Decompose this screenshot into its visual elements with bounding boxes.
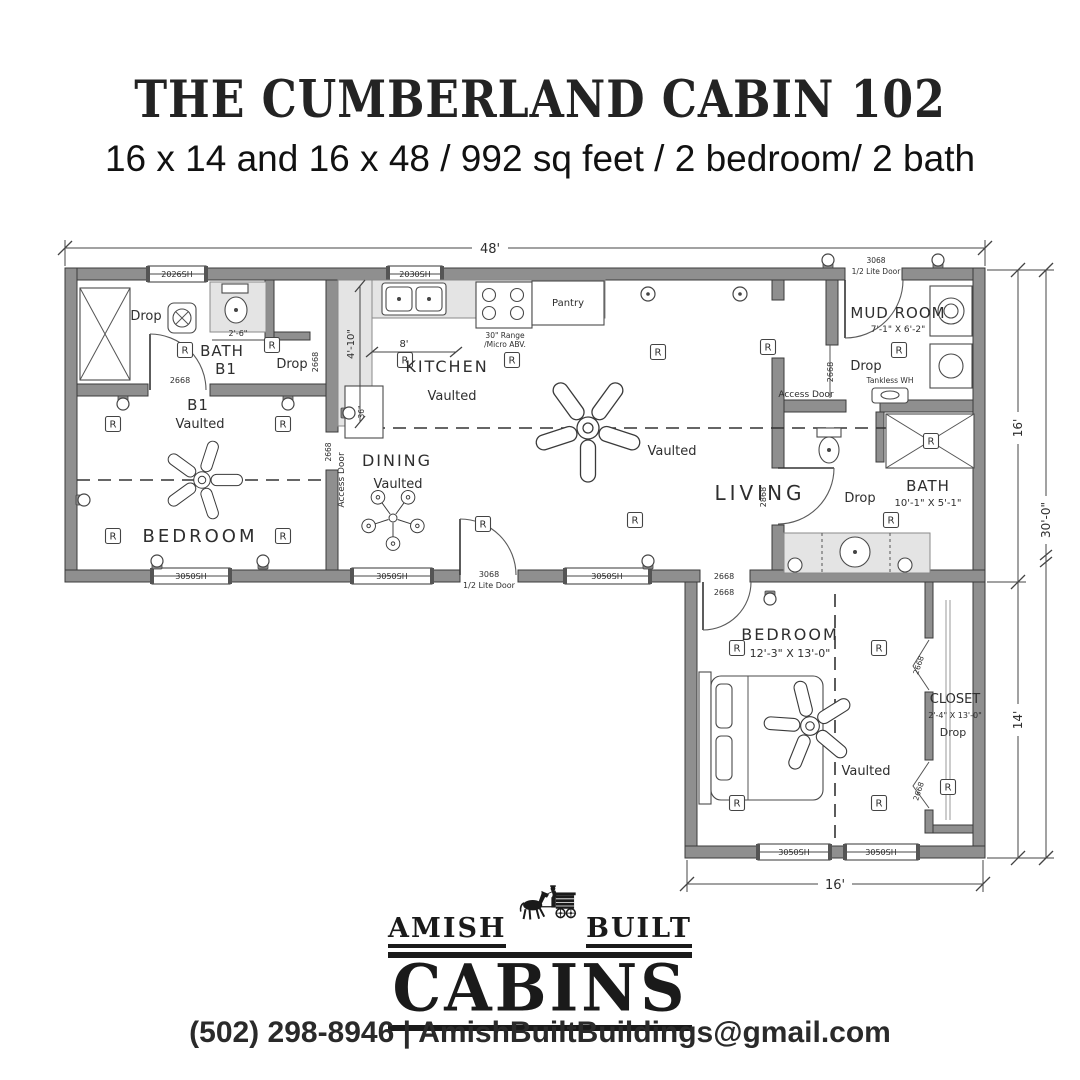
living-vaulted: Vaulted (647, 444, 696, 459)
window-3050sh-bed1: 3050SH (150, 568, 232, 584)
bed1-vaulted: Vaulted (175, 417, 224, 432)
svg-text:R: R (655, 348, 662, 359)
svg-text:R: R (110, 532, 117, 543)
svg-text:R: R (734, 644, 741, 655)
closet1-drop: Drop (276, 357, 307, 372)
kitchen-sink (382, 283, 446, 315)
window-2026sh: 2026SH (146, 266, 208, 282)
svg-text:2668: 2668 (170, 376, 190, 385)
svg-text:R: R (928, 437, 935, 448)
bed2-size: 12'-3" X 13'-0" (750, 647, 831, 660)
svg-text:R: R (480, 520, 487, 531)
window-3050sh-dining: 3050SH (350, 568, 434, 584)
kitchen-vaulted: Vaulted (427, 389, 476, 404)
svg-text:R: R (269, 341, 276, 352)
svg-text:R: R (110, 420, 117, 431)
svg-text:3068: 3068 (479, 570, 499, 579)
bed1-code: B1 (187, 396, 209, 414)
bath2-size: 10'-1" X 5'-1" (895, 498, 962, 509)
dining-vaulted: Vaulted (373, 477, 422, 492)
svg-text:R: R (945, 783, 952, 794)
svg-text:2668: 2668 (826, 362, 835, 382)
svg-text:R: R (876, 644, 883, 655)
bath1-code: B1 (215, 360, 237, 378)
shower-bath1 (80, 288, 130, 380)
mudroom-drop: Drop (850, 359, 881, 374)
svg-text:1/2 Lite Door: 1/2 Lite Door (852, 267, 902, 276)
closet2-size: 2'-4" X 13'-0" (928, 711, 982, 720)
dim-bath1-nook: 2'-6" (229, 329, 248, 338)
svg-text:R: R (280, 532, 287, 543)
bath2-drop: Drop (844, 491, 875, 506)
svg-text:3050SH: 3050SH (376, 572, 407, 581)
dining-chandelier (360, 488, 426, 551)
closet2-name: CLOSET (930, 692, 981, 707)
svg-text:3050SH: 3050SH (778, 848, 809, 857)
window-3050sh-bed2a: 3050SH (756, 844, 832, 860)
fan-bed1 (166, 440, 243, 521)
exhaust-fan-icon (168, 303, 196, 333)
svg-text:3050SH: 3050SH (591, 572, 622, 581)
range (476, 282, 532, 328)
bed2-vaulted: Vaulted (841, 764, 890, 779)
svg-text:2668: 2668 (911, 781, 926, 802)
svg-text:2668: 2668 (714, 572, 734, 581)
svg-text:2026SH: 2026SH (161, 270, 192, 279)
logo-word-cabins: CABINS (385, 955, 695, 1023)
toilet-bath2 (817, 428, 841, 463)
access-door-label: Access Door (337, 452, 347, 508)
svg-text:1/2 Lite Door: 1/2 Lite Door (463, 581, 516, 590)
kitchen-name: KITCHEN (405, 357, 488, 376)
svg-text:2668: 2668 (714, 588, 734, 597)
window-3050sh-living: 3050SH (563, 568, 652, 584)
mudroom-name: MUD ROOM (850, 304, 945, 322)
bed1-name: BEDROOM (143, 526, 258, 547)
bath1-name: BATH (200, 342, 244, 360)
window-3050sh-bed2b: 3050SH (843, 844, 920, 860)
living-name: LIVING (714, 481, 805, 505)
dim-16ft-lower: 16' (825, 878, 845, 893)
dim-30ft: 30'-0" (1039, 502, 1053, 538)
amish-built-cabins-logo: AMISH (388, 856, 692, 1031)
tankless-label: Tankless WH (866, 376, 914, 385)
dining-name: DINING (362, 451, 432, 470)
bath1-drop: Drop (130, 309, 161, 324)
svg-text:R: R (182, 346, 189, 357)
closet2-drop: Drop (940, 726, 966, 739)
pantry-label: Pantry (552, 298, 584, 309)
svg-text:R: R (734, 799, 741, 810)
fan-living (526, 362, 656, 496)
logo-word-built: BUILT (586, 915, 692, 948)
horse-and-wagon-icon (512, 856, 580, 948)
vanity-bath2 (784, 533, 930, 573)
svg-text:R: R (509, 356, 516, 367)
svg-text:R: R (876, 799, 883, 810)
svg-text:2668: 2668 (324, 442, 333, 461)
dryer (930, 344, 972, 388)
tankless-water-heater (872, 388, 908, 403)
svg-text:3050SH: 3050SH (865, 848, 896, 857)
svg-text:2030SH: 2030SH (399, 270, 430, 279)
toilet-bath1 (210, 282, 266, 332)
svg-text:2668: 2668 (311, 352, 320, 372)
bath2-name: BATH (906, 477, 950, 495)
dim-kitchen-8ft: 8' (399, 339, 408, 350)
access-door-label-2: Access Door (778, 390, 834, 400)
mudroom-size: 7'-1" X 6'-2" (871, 325, 926, 335)
svg-text:R: R (632, 516, 639, 527)
bed2-name: BEDROOM (741, 625, 839, 644)
svg-text:R: R (765, 343, 772, 354)
dim-48ft: 48' (480, 242, 500, 257)
dim-16ft-upper: 16' (1011, 419, 1025, 438)
range-note-1: 30" Range (485, 331, 525, 340)
logo-word-amish: AMISH (388, 915, 506, 948)
svg-text:3068: 3068 (866, 256, 885, 265)
svg-text:R: R (280, 420, 287, 431)
contact-info: (502) 298-8946 | AmishBuiltBuildings@gma… (0, 1016, 1080, 1050)
dim-14ft: 14' (1011, 711, 1025, 730)
range-note-2: /Micro ABV. (484, 340, 526, 349)
svg-text:R: R (896, 346, 903, 357)
flyer-page: THE CUMBERLAND CABIN 102 16 x 14 and 16 … (0, 0, 1080, 1080)
svg-text:R: R (888, 516, 895, 527)
svg-text:2668: 2668 (911, 655, 926, 676)
dim-kitchen-410: 4'-10" (346, 329, 357, 359)
svg-text:3050SH: 3050SH (175, 572, 206, 581)
